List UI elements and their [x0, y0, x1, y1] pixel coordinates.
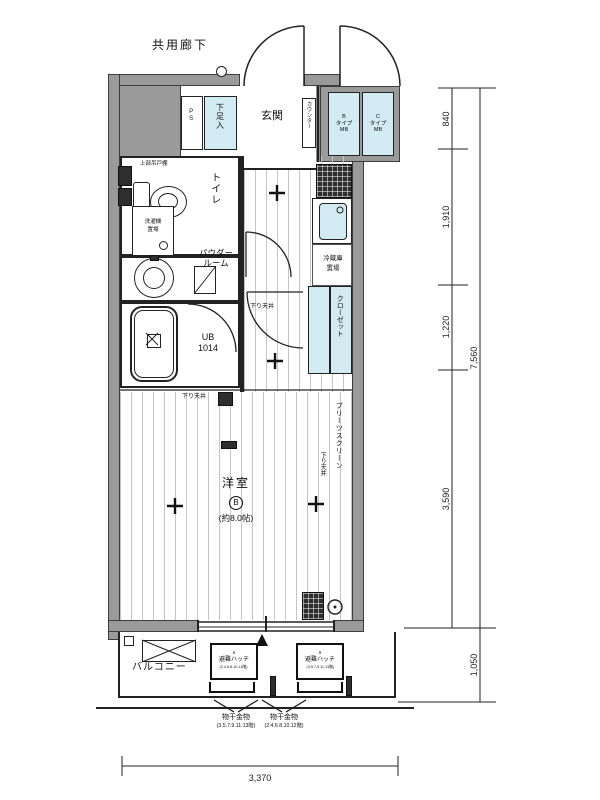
wall-left [108, 74, 120, 640]
evacuation-hatch-right: ∧ 避難ハッチ (3.5.7.9.11.13階) [296, 643, 344, 680]
kitchen-sink-icon [319, 203, 347, 240]
balcony-divider-stub-1 [270, 676, 276, 696]
lowered-ceiling-label-3: 下り天井 [318, 452, 325, 476]
washbasin-inner [143, 267, 165, 289]
dim-1220: 1,220 [441, 316, 451, 339]
dim-3370: 3,370 [249, 773, 272, 783]
bath-label-size: 1014 [190, 343, 226, 354]
pole-floors-right: (2.4.6.8.10.12階) [258, 723, 309, 729]
wall-bottom-right [334, 620, 364, 632]
powder-counter-icon [194, 266, 216, 294]
door-closer-mark [216, 66, 227, 77]
pleats-screen-label: プリーツスクリーン [334, 402, 342, 470]
pole-right-group: 物干金物 (2.4.6.8.10.12階) [252, 714, 316, 730]
dim-1910: 1,910 [441, 206, 451, 229]
kitchen-counter [312, 198, 352, 244]
wall-top-segment-2 [304, 74, 340, 86]
closet-door-split [329, 287, 331, 373]
wall-control-box-2 [118, 188, 132, 206]
dim-1050: 1,050 [469, 654, 479, 677]
hatch-label-right: 避難ハッチ [305, 657, 335, 664]
fridge-space: 冷蔵庫 置場 [312, 244, 352, 286]
balcony-label: バルコニー [132, 662, 187, 674]
room-label: 洋室 [200, 476, 272, 490]
bath-drain-icon [147, 334, 161, 348]
wall-bottom-left [108, 620, 198, 632]
balcony-drain-box [124, 636, 134, 646]
mb-right-line3: MB [363, 127, 393, 133]
lowered-ceiling-label-1: 下り天井 [250, 304, 274, 311]
laundry-drain [159, 241, 168, 250]
hatch-label-left: 避難ハッチ [219, 657, 249, 664]
bath-label-ub: UB [190, 332, 226, 343]
pipe-space-label: PS [187, 109, 194, 123]
wall-right [352, 156, 364, 632]
balcony-divider-stub-2 [346, 676, 352, 696]
pole-arrows [214, 700, 306, 712]
shoe-box: 下足入 [204, 96, 237, 150]
common-corridor-label: 共用廊下 [152, 38, 208, 52]
ceiling-marker-2 [221, 441, 237, 449]
dim-3590: 3,590 [441, 488, 451, 511]
kitchen-hatched-box [316, 164, 352, 198]
room-size-label: (約8.0帖) [200, 513, 272, 523]
toilet-label: トイレ [208, 172, 220, 205]
counter-label: カウンター [305, 101, 311, 129]
shoe-box-label: 下足入 [215, 103, 224, 130]
fridge-label-1: 冷蔵庫 [317, 255, 349, 263]
fridge-label-2: 置場 [317, 265, 349, 273]
upper-shelf-label: 上部吊戸棚 [140, 161, 168, 167]
meter-box-right: C タイプ MB [362, 92, 394, 156]
counter-box: カウンター [302, 98, 316, 148]
water-heater-box [302, 592, 324, 620]
dim-840: 840 [441, 111, 451, 126]
laundry-label-2: 置場 [137, 227, 169, 233]
room-label-group: 洋室 B (約8.0帖) [200, 476, 272, 523]
hatch-floors-left: (2.4.6.8.10.12階) [220, 666, 248, 670]
powder-label-1: パウダー [188, 248, 244, 258]
washbasin-icon [134, 258, 174, 298]
dim-7560-total: 7,560 [469, 347, 479, 370]
bath-label: UB 1014 [190, 332, 226, 353]
closet-label: クローゼット [335, 295, 343, 337]
closet: クローゼット [308, 286, 352, 374]
hatch-floors-right: (3.5.7.9.11.13階) [306, 666, 334, 670]
bathtub-icon [130, 306, 178, 382]
lowered-ceiling-label-2: 下り天井 [182, 394, 206, 401]
balcony-ac-pad [142, 640, 196, 662]
wall-control-box-1 [118, 166, 132, 186]
laundry-space: 洗濯機 置場 [132, 206, 174, 256]
entrance-label: 玄関 [252, 110, 292, 123]
dimension-lines-right [398, 88, 496, 702]
meter-box-left: B タイプ MB [328, 92, 360, 156]
laundry-label-1: 洗濯機 [137, 219, 169, 225]
washbasin-tap [150, 255, 159, 261]
floor-plan: PS 下足入 カウンター 玄関 B タイプ MB C タイプ MB トイレ 上部… [0, 0, 600, 800]
room-type-mark: B [229, 496, 243, 510]
pipe-space-box: PS [181, 96, 203, 150]
ceiling-marker-1 [218, 392, 233, 406]
evacuation-hatch-left: ∧ 避難ハッチ (2.4.6.8.10.12階) [210, 643, 258, 680]
pole-label-right: 物干金物 [252, 714, 316, 722]
mb-left-line3: MB [329, 127, 359, 133]
